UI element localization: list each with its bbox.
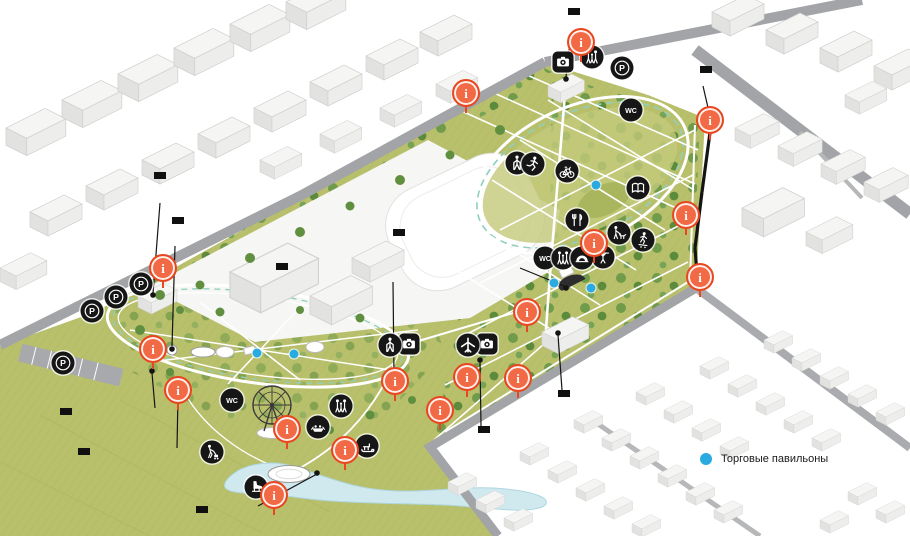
parking-icon[interactable] (105, 286, 128, 309)
icon-glyph (358, 437, 377, 456)
icon-glyph (558, 162, 577, 181)
photo-spot-icon[interactable] (477, 334, 498, 355)
legend-label: Торговые павильоны (721, 453, 828, 465)
info-marker[interactable]: i (567, 28, 595, 56)
lawn-care-icon[interactable] (201, 441, 224, 464)
icon-glyph (400, 335, 419, 354)
icon-glyph (634, 231, 653, 250)
info-marker[interactable]: i (580, 229, 608, 257)
kiosk-dot[interactable] (253, 349, 262, 358)
info-marker[interactable]: i (453, 363, 481, 391)
icon-glyph (203, 443, 222, 462)
running-icon[interactable] (522, 153, 545, 176)
icon-glyph (223, 391, 242, 410)
icon-glyph (554, 53, 573, 72)
info-marker[interactable]: i (686, 263, 714, 291)
lectory-zone-callout (78, 448, 90, 455)
info-marker[interactable]: i (164, 376, 192, 404)
info-marker[interactable]: i (672, 201, 700, 229)
icon-glyph (107, 288, 126, 307)
icon-glyph (524, 155, 543, 174)
info-marker[interactable]: i (260, 481, 288, 509)
wedding-area-callout (393, 229, 405, 236)
icon-glyph (459, 336, 478, 355)
info-marker[interactable]: i (139, 335, 167, 363)
airplane-monument-icon[interactable] (457, 334, 480, 357)
info-marker[interactable]: i (381, 367, 409, 395)
icon-glyph (54, 354, 73, 373)
kiosk-dot[interactable] (290, 350, 299, 359)
icon-glyph (568, 211, 587, 230)
icon-glyph (132, 275, 151, 294)
park-master-plan: P WC (0, 0, 910, 536)
ferris-wheel-callout (276, 263, 288, 270)
utility-block-callout (558, 390, 570, 397)
kiosk-dot[interactable] (550, 279, 559, 288)
info-marker[interactable]: i (273, 415, 301, 443)
kiosk-dot[interactable] (592, 181, 601, 190)
dog-walking-icon[interactable] (608, 222, 631, 245)
photo-spot-icon[interactable] (553, 52, 574, 73)
parking-icon[interactable] (81, 300, 104, 323)
cycling-icon[interactable] (556, 160, 579, 183)
info-marker[interactable]: i (426, 396, 454, 424)
kiosk-legend-dot (700, 453, 712, 465)
parking-icon[interactable] (52, 352, 75, 375)
legend-item-kiosks: Торговые павильоны (700, 453, 828, 465)
skatepark-icon[interactable] (632, 229, 655, 252)
info-marker[interactable]: i (452, 79, 480, 107)
kiosk-dot[interactable] (587, 284, 596, 293)
info-marker[interactable]: i (331, 436, 359, 464)
icon-glyph (622, 101, 641, 120)
reading-zone-icon[interactable] (627, 177, 650, 200)
icon-glyph (613, 59, 632, 78)
icon-glyph (478, 335, 497, 354)
parking-icon[interactable] (611, 57, 634, 80)
icon-glyph (83, 302, 102, 321)
info-marker[interactable]: i (504, 364, 532, 392)
nordic-walking-icon[interactable] (379, 334, 402, 357)
icon-glyph (381, 336, 400, 355)
food-court-icon[interactable] (566, 209, 589, 232)
icon-glyph (309, 418, 328, 437)
gazebo-callout (172, 217, 184, 224)
boat-station-icon[interactable] (307, 416, 330, 439)
wc-icon[interactable] (221, 389, 244, 412)
icon-glyph (610, 224, 629, 243)
family-zone-icon[interactable] (330, 395, 353, 418)
reconciliation-zone-callout (60, 408, 72, 415)
sledding-icon[interactable] (356, 435, 379, 458)
entrance-sign-callout (568, 8, 580, 15)
wc-icon[interactable] (620, 99, 643, 122)
info-marker[interactable]: i (149, 254, 177, 282)
info-marker[interactable]: i (513, 298, 541, 326)
photo-spot-icon[interactable] (399, 334, 420, 355)
icon-glyph (332, 397, 351, 416)
heating-main-callout (700, 66, 712, 73)
history-zone-callout (478, 426, 490, 433)
icon-glyph (629, 179, 648, 198)
info-marker[interactable]: i (696, 106, 724, 134)
pontoon-callout (196, 506, 208, 513)
parking-icon[interactable] (130, 273, 153, 296)
admin-facade-callout (154, 172, 166, 179)
